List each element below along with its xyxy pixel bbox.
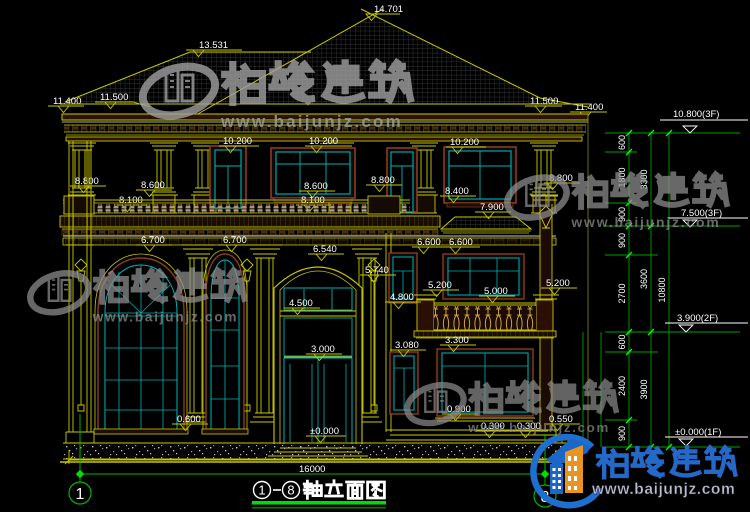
svg-text:8: 8 [287, 483, 294, 498]
svg-text:10.200: 10.200 [223, 136, 252, 147]
svg-text:6.700: 6.700 [141, 235, 165, 246]
svg-text:3.900(2F): 3.900(2F) [677, 313, 718, 324]
svg-text:±0.000: ±0.000 [310, 426, 339, 437]
svg-text:3.080: 3.080 [395, 340, 419, 351]
svg-text:900: 900 [617, 426, 627, 441]
svg-text:8.400: 8.400 [445, 186, 469, 197]
svg-text:600: 600 [617, 135, 627, 150]
svg-text:900: 900 [617, 233, 627, 248]
svg-text:±0.000(1F): ±0.000(1F) [675, 427, 721, 438]
svg-text:6.540: 6.540 [313, 244, 337, 255]
svg-text:5.000: 5.000 [484, 286, 508, 297]
svg-text:10.200: 10.200 [450, 137, 479, 148]
svg-text:8.800: 8.800 [371, 175, 395, 186]
svg-text:3900: 3900 [639, 379, 649, 399]
svg-text:16000: 16000 [299, 464, 325, 475]
svg-text:www.baijunjz.com: www.baijunjz.com [591, 481, 735, 498]
svg-text:10.200: 10.200 [309, 136, 338, 147]
svg-text:11.500: 11.500 [530, 96, 558, 107]
svg-text:5.200: 5.200 [428, 280, 452, 291]
svg-text:3.300: 3.300 [445, 335, 469, 346]
svg-text:3.000: 3.000 [311, 344, 335, 355]
svg-text:11.400: 11.400 [53, 96, 81, 107]
svg-text:4.500: 4.500 [289, 298, 313, 309]
svg-text:11.500: 11.500 [100, 92, 128, 103]
svg-text:2700: 2700 [617, 283, 627, 303]
svg-text:600: 600 [617, 334, 627, 349]
svg-text:8.600: 8.600 [304, 181, 328, 192]
svg-text:0.600: 0.600 [177, 414, 201, 425]
svg-text:10800: 10800 [657, 277, 667, 302]
svg-text:2400: 2400 [617, 376, 627, 396]
svg-text:6.600: 6.600 [449, 237, 473, 248]
svg-text:5.200: 5.200 [546, 278, 570, 289]
svg-text:10.800(3F): 10.800(3F) [673, 109, 719, 120]
svg-text:4.800: 4.800 [390, 292, 414, 303]
svg-text:5.740: 5.740 [365, 265, 389, 276]
svg-text:14.701: 14.701 [374, 4, 403, 15]
svg-text:1: 1 [76, 486, 85, 503]
svg-text:6.600: 6.600 [417, 237, 441, 248]
svg-text:1: 1 [258, 483, 265, 498]
svg-text:13.531: 13.531 [199, 40, 228, 51]
svg-text:3600: 3600 [639, 269, 649, 289]
svg-text:7.900: 7.900 [480, 202, 504, 213]
svg-text:8.600: 8.600 [141, 180, 165, 191]
svg-text:6.700: 6.700 [223, 235, 247, 246]
